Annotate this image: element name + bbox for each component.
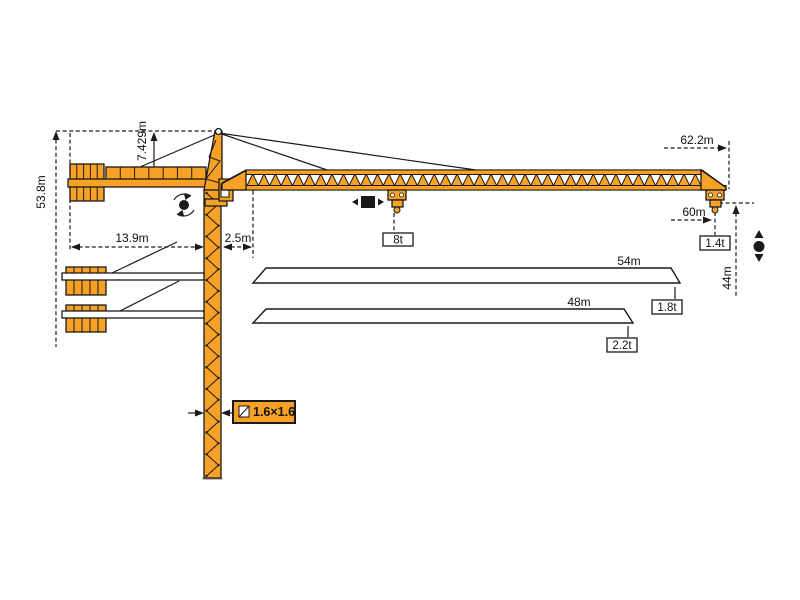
hook-mid [394, 207, 400, 213]
dim-radius-60: 60m [682, 205, 705, 219]
slewing-icon [174, 194, 194, 216]
crane-dimension-diagram: 1.6×1.6 53.8m 7.429m 13.9m 2.5m 62.2m 60… [0, 0, 800, 600]
mast-section-text: 1.6×1.6 [253, 405, 295, 419]
counter-jib-platform [106, 167, 206, 180]
apex-pin [216, 129, 222, 135]
counter-jib-girder [68, 179, 207, 187]
jib-tip [701, 170, 726, 190]
dim-counter-radius: 13.9m [115, 231, 148, 245]
mast [203, 190, 228, 480]
dim-tower-head: 7.429m [135, 121, 149, 161]
ballast-beam-2 [62, 311, 204, 318]
load-1-8t: 1.8t [657, 302, 677, 314]
tie-rods [140, 133, 483, 171]
hoisting-icon [754, 230, 765, 262]
dim-max-radius: 62.2m [680, 133, 713, 147]
jib-length-54m: 54m [617, 254, 640, 268]
mast-section-label: 1.6×1.6 [233, 401, 295, 423]
jib-outline-54m [253, 268, 680, 283]
trolley-tip [706, 190, 724, 213]
main-jib [222, 170, 726, 190]
jib-top-chord [246, 170, 702, 175]
ballast-beam-1 [62, 273, 204, 280]
load-2-2t: 2.2t [612, 340, 632, 352]
dim-hook-height: 44m [720, 266, 734, 289]
load-8t: 8t [393, 235, 403, 247]
load-1-4t: 1.4t [705, 238, 725, 250]
counterweight-option-1 [62, 267, 204, 295]
dim-offset: 2.5m [225, 231, 252, 245]
trolley-travel-icon [352, 196, 384, 208]
jib-length-48m: 48m [567, 295, 590, 309]
counterweight-option-2 [62, 305, 204, 332]
dim-total-height: 53.8m [34, 175, 48, 208]
jib-bottom-chord [222, 186, 726, 191]
hook-tip [712, 207, 718, 213]
trolley-mid [388, 190, 406, 213]
jib-outline-48m [253, 309, 633, 323]
